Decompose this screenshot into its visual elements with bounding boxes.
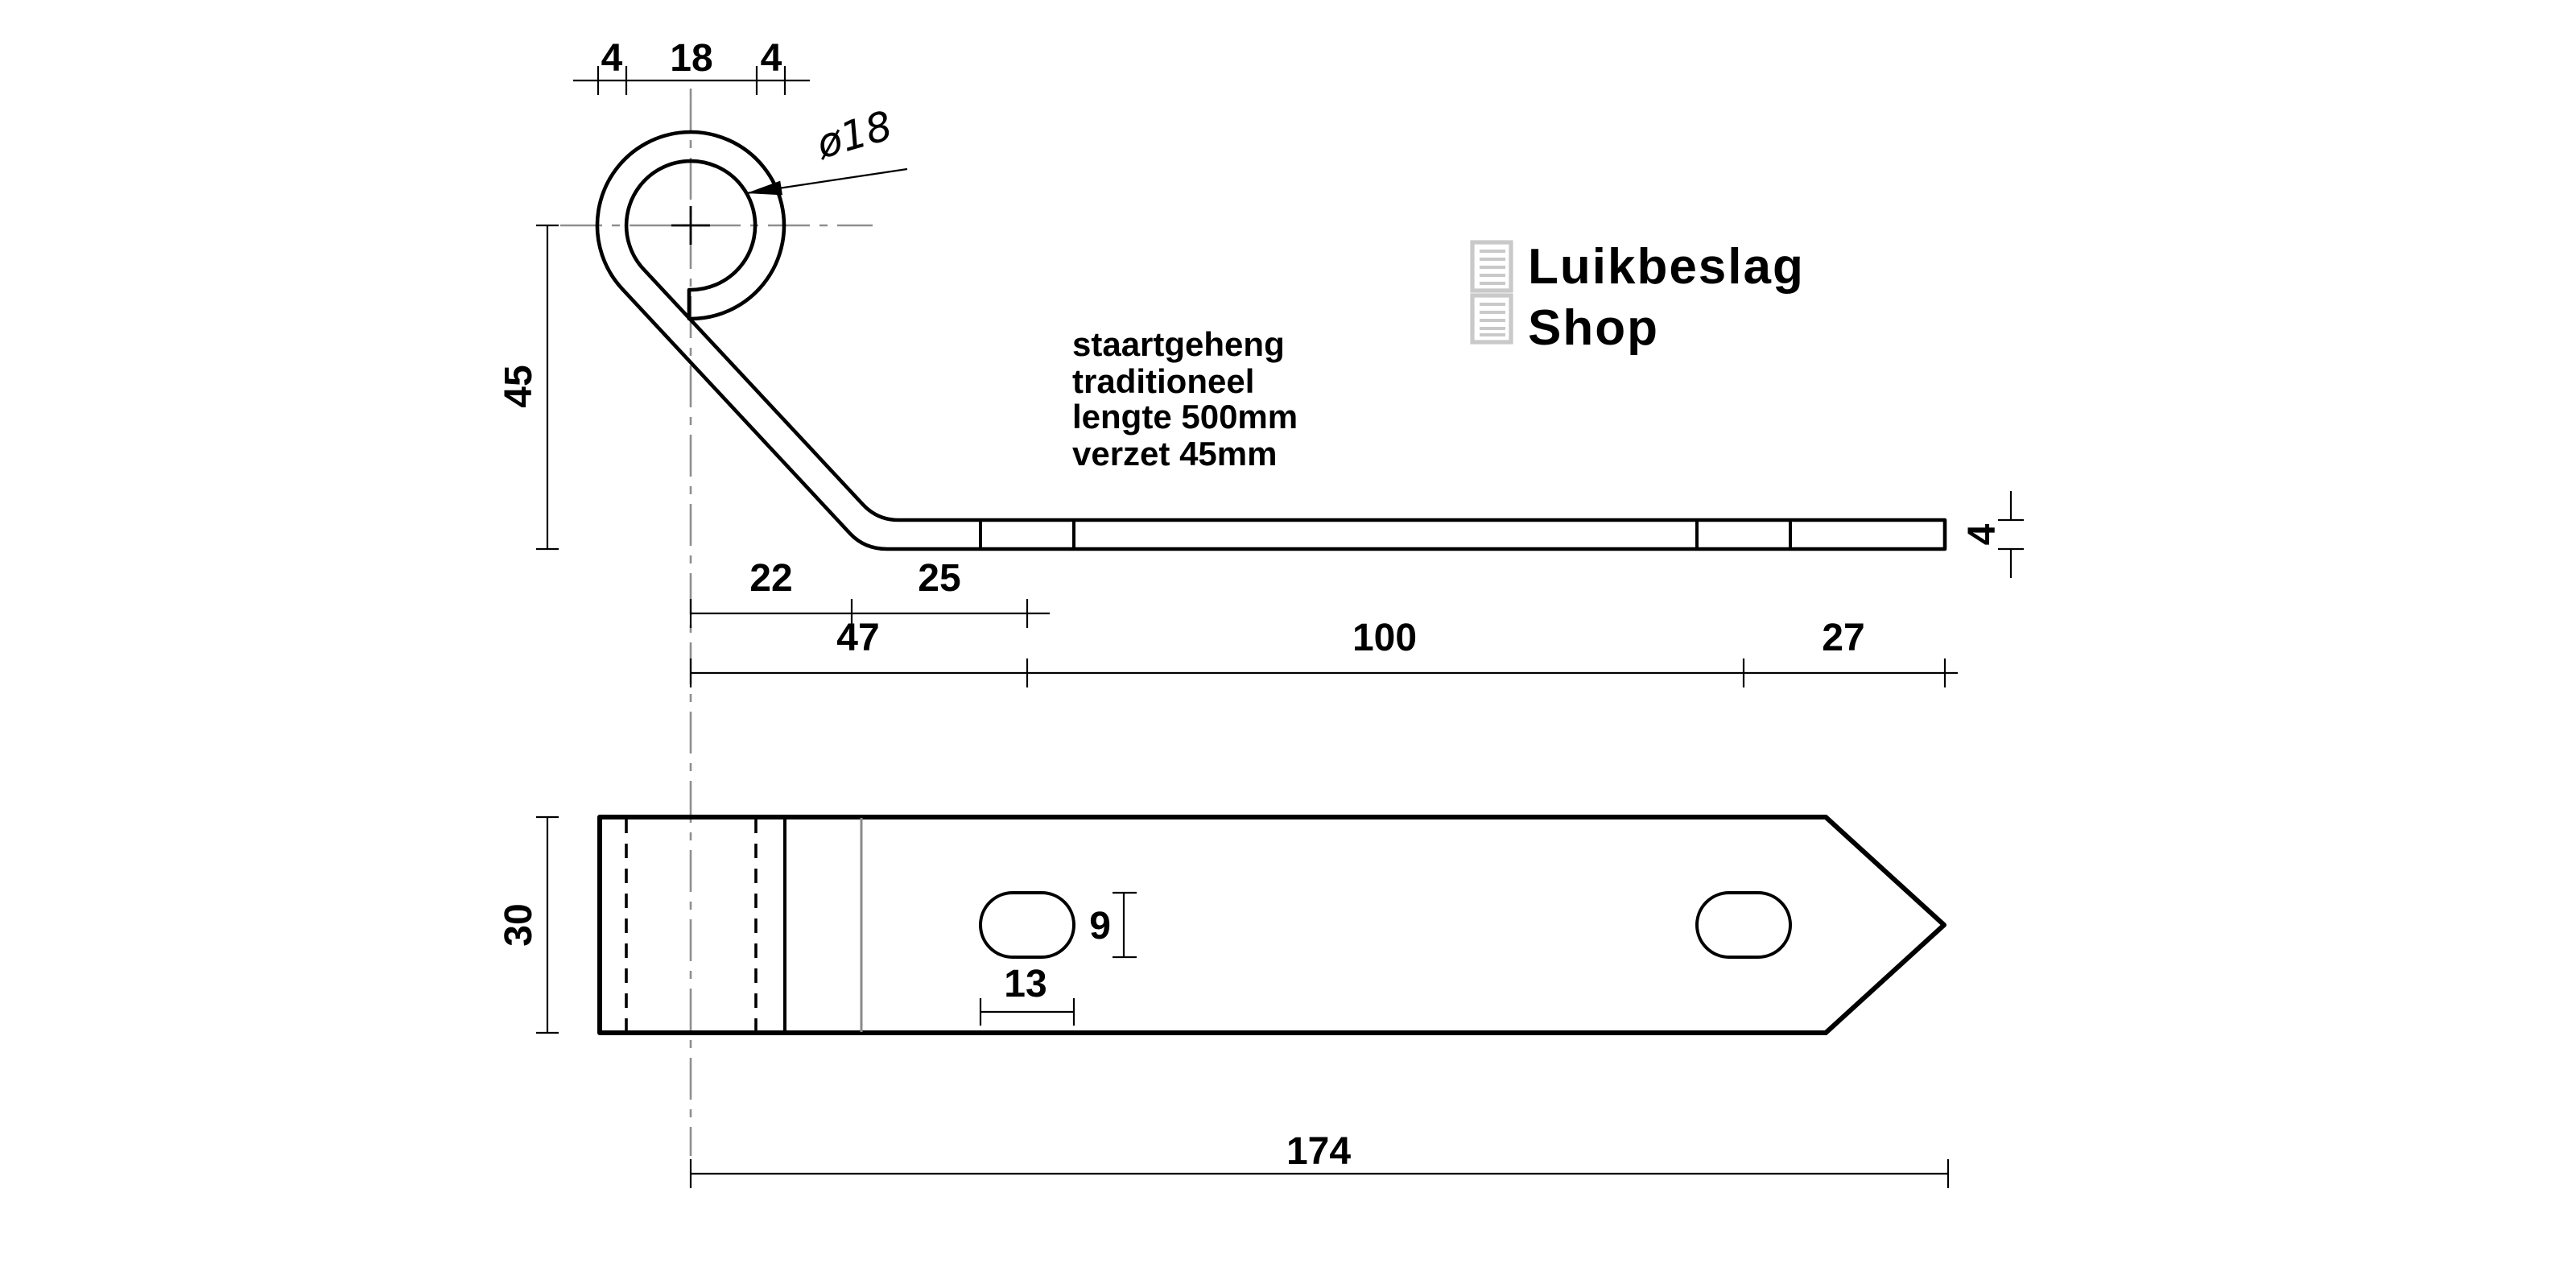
slot-hole-1 (980, 893, 1074, 957)
dim-slot-height: 9 (1089, 893, 1137, 957)
dim-slot-length: 13 (980, 963, 1074, 1026)
note-line-4: verzet 45mm (1072, 435, 1277, 473)
dim-bend-to-hole-label: 25 (918, 557, 960, 600)
dim-eye-section: 4 18 4 (573, 37, 810, 95)
dim-hole1-from-center-label: 47 (836, 617, 879, 659)
dim-eye-diameter-label: ø18 (811, 102, 898, 168)
dim-offset-height: 45 (497, 225, 559, 549)
strap-hinge-drawing: 4 18 4 ø18 45 22 25 47 100 27 (0, 0, 2576, 1288)
technical-drawing-page: 4 18 4 ø18 45 22 25 47 100 27 (0, 0, 2576, 1288)
leader-arrowhead (746, 181, 782, 196)
dim-chain-holes: 47 100 27 (691, 617, 1958, 687)
note-block: staartgeheng traditioneel lengte 500mm v… (1072, 325, 1298, 473)
logo-text-line-1: Luikbeslag (1528, 239, 1805, 295)
dim-hole-spacing-label: 100 (1352, 617, 1417, 659)
dim-offset-height-label: 45 (497, 365, 540, 407)
note-line-1: staartgeheng (1072, 325, 1285, 363)
dim-total-length-label: 174 (1286, 1130, 1351, 1173)
centerlines (560, 89, 873, 1156)
dim-bend-offset-label: 22 (749, 557, 792, 600)
dim-strap-width: 30 (497, 817, 559, 1033)
dim-total-length: 174 (691, 1130, 1948, 1188)
dim-strap-width-label: 30 (497, 903, 540, 946)
dim-eye-inner-diameter: 18 (670, 37, 712, 80)
plan-view-outline (600, 817, 1944, 1033)
dim-slot-length-label: 13 (1004, 963, 1046, 1005)
dim-eye-diameter-leader: ø18 (746, 102, 907, 196)
dim-strap-thickness-label: 4 (1961, 523, 2004, 545)
logo: Luikbeslag Shop (1472, 239, 1805, 356)
plan-view (600, 817, 1944, 1033)
note-line-3: lengte 500mm (1072, 398, 1298, 436)
shutter-icon-slats (1480, 251, 1505, 335)
shutter-icon (1472, 242, 1511, 342)
dim-slot-height-label: 9 (1089, 905, 1111, 947)
logo-text-line-2: Shop (1528, 300, 1659, 356)
dim-strap-thickness: 4 (1961, 491, 2024, 578)
slot-hole-2 (1697, 893, 1790, 957)
dim-eye-wall-left: 4 (601, 37, 623, 80)
dim-eye-wall-right: 4 (761, 37, 782, 80)
dim-hole2-to-tip-label: 27 (1822, 617, 1864, 659)
note-line-2: traditioneel (1072, 362, 1254, 400)
